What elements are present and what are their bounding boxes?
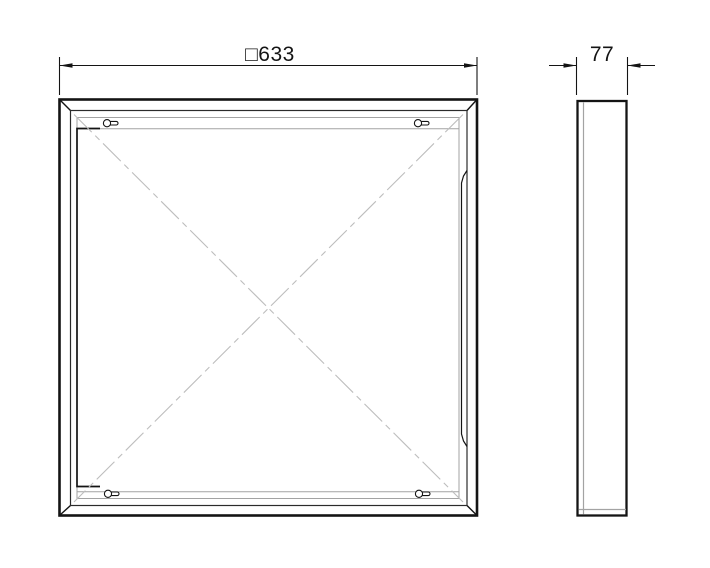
front-view <box>60 100 478 516</box>
arrowhead-left <box>60 63 73 67</box>
side-outer-profile <box>578 101 627 516</box>
side-view <box>578 101 627 516</box>
arrowhead-right <box>464 63 477 67</box>
width-dimension-text: □633 <box>245 43 295 66</box>
dimension-width: □633 <box>60 43 478 95</box>
drawing-canvas: □633 77 <box>0 0 710 568</box>
technical-drawing: □633 77 <box>0 0 710 568</box>
front-outer-frame <box>60 100 478 516</box>
depth-dimension-text: 77 <box>590 43 614 66</box>
dimension-depth: 77 <box>549 43 655 95</box>
arrowhead-left <box>564 63 577 67</box>
arrowhead-right <box>628 63 641 67</box>
